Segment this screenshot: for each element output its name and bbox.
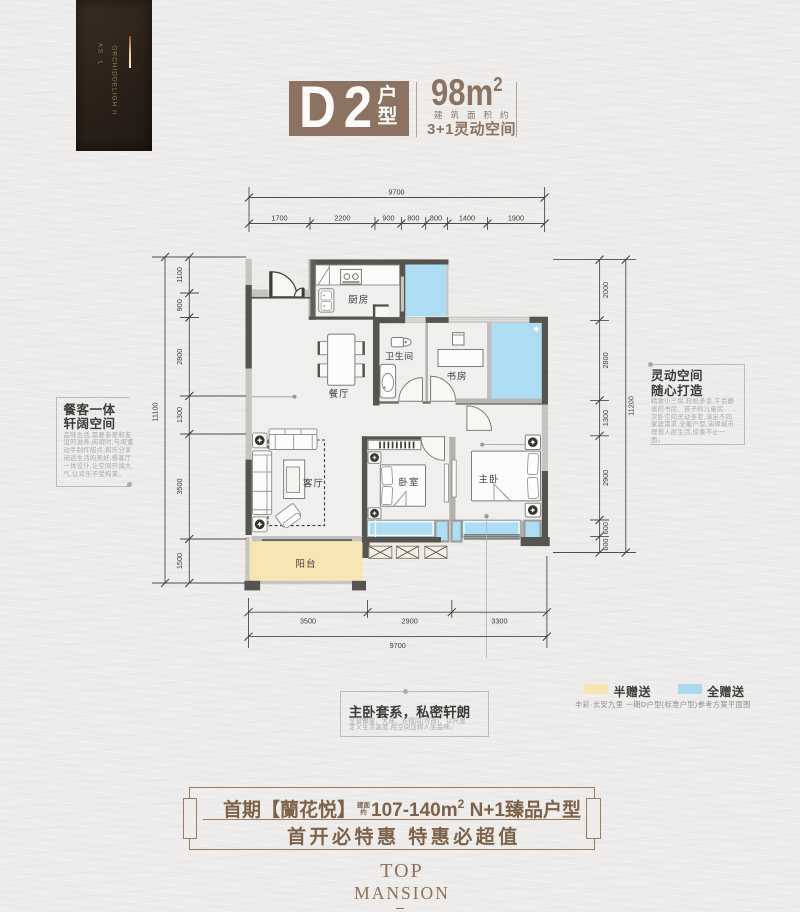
svg-text:600: 600 (601, 538, 610, 550)
svg-text:2900: 2900 (402, 617, 418, 626)
svg-text:1300: 1300 (601, 410, 610, 426)
svg-text:11200: 11200 (627, 396, 636, 416)
svg-text:3500: 3500 (300, 617, 316, 626)
svg-text:客厅: 客厅 (303, 478, 324, 490)
svg-text:1900: 1900 (508, 214, 524, 223)
svg-text:1300: 1300 (175, 407, 184, 423)
svg-text:2200: 2200 (334, 214, 350, 223)
svg-text:1700: 1700 (271, 214, 287, 223)
svg-text:3300: 3300 (491, 617, 507, 626)
svg-text:餐厅: 餐厅 (329, 388, 350, 400)
svg-text:1500: 1500 (175, 553, 184, 569)
svg-text:厨房: 厨房 (348, 294, 369, 306)
svg-text:900: 900 (382, 214, 394, 223)
svg-text:9700: 9700 (390, 641, 406, 650)
svg-text:800: 800 (430, 214, 442, 223)
svg-text:阳台: 阳台 (295, 558, 316, 570)
svg-text:卫生间: 卫生间 (385, 351, 414, 362)
svg-text:1100: 1100 (175, 267, 184, 283)
svg-text:2800: 2800 (601, 352, 610, 368)
svg-text:1400: 1400 (459, 214, 475, 223)
svg-text:600: 600 (601, 522, 610, 534)
svg-text:2000: 2000 (601, 282, 610, 298)
svg-text:900: 900 (175, 299, 184, 311)
svg-text:2800: 2800 (175, 349, 184, 365)
svg-text:800: 800 (407, 214, 419, 223)
svg-text:9700: 9700 (388, 188, 404, 197)
svg-text:3500: 3500 (175, 478, 184, 494)
svg-text:11100: 11100 (151, 402, 160, 421)
svg-text:卧室: 卧室 (398, 477, 419, 489)
svg-text:书房: 书房 (446, 371, 467, 383)
svg-text:2900: 2900 (601, 470, 610, 486)
svg-text:主卧: 主卧 (478, 474, 499, 486)
